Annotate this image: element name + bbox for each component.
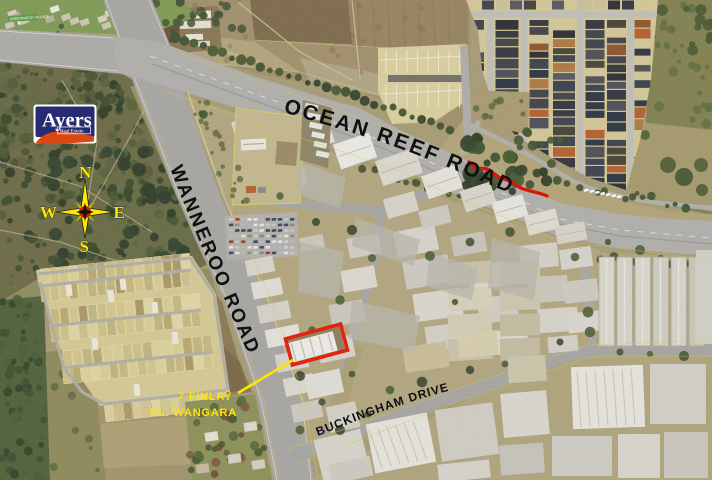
svg-text:Real Estate: Real Estate <box>60 129 84 135</box>
svg-text:7 FINLAY: 7 FINLAY <box>178 391 232 403</box>
svg-text:N: N <box>79 163 92 182</box>
svg-text:W: W <box>40 203 57 222</box>
svg-text:S: S <box>80 237 89 256</box>
svg-text:PL. WANGARA: PL. WANGARA <box>150 407 237 419</box>
svg-text:E: E <box>114 203 125 222</box>
